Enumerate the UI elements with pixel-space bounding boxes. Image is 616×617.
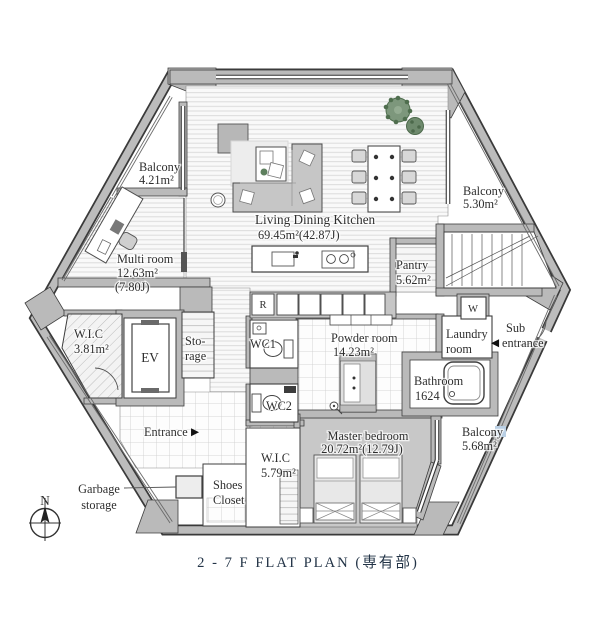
- label-bathroom-name: Bathroom: [414, 374, 464, 388]
- label-laundry-1: Laundry: [446, 327, 489, 341]
- label-sub-1: Sub: [506, 321, 525, 335]
- label-pantry-area: 5.62m²: [396, 273, 431, 287]
- label-wic-bedroom-area: 5.79m²: [261, 466, 296, 480]
- label-powder-name: Powder room: [331, 331, 398, 345]
- nightstand: [300, 508, 313, 523]
- label-laundry-2: room: [446, 342, 472, 356]
- label-balcony-tl-area: 4.21m²: [139, 173, 174, 187]
- label-ldk-name: Living Dining Kitchen: [255, 212, 376, 227]
- label-wic-small-name: W.I.C: [74, 327, 103, 341]
- caption: 2 - 7 F FLAT PLAN (専有部): [197, 554, 419, 571]
- label-wc1: WC1: [250, 337, 276, 351]
- label-balcony-tl-name: Balcony: [139, 160, 181, 174]
- label-shoes-2: Closet: [213, 493, 245, 507]
- coffee-table: [256, 147, 286, 181]
- label-multi-area2: (7.80J): [115, 280, 150, 294]
- label-multi-area: 12.63m²: [117, 266, 158, 280]
- corridor-floor: [210, 288, 250, 392]
- nightstand: [403, 508, 416, 523]
- label-washer: W: [468, 304, 478, 315]
- side-stool: [211, 193, 225, 207]
- label-wic-bedroom-name: W.I.C: [261, 451, 290, 465]
- label-garbage-2: storage: [81, 498, 117, 512]
- label-storage-2: rage: [185, 349, 207, 363]
- label-ldk-area: 69.45m²(42.87J): [258, 228, 340, 242]
- sub-entrance-arrow: ◀: [491, 338, 500, 349]
- label-powder-area: 14.23m²: [333, 345, 374, 359]
- dining-set: [352, 146, 416, 212]
- label-pantry-name: Pantry: [396, 258, 429, 272]
- label-balcony-br-area: 5.68m²: [462, 439, 497, 453]
- label-elevator: EV: [141, 350, 159, 365]
- label-master-name: Master bedroom: [328, 429, 409, 443]
- bed: [314, 455, 356, 523]
- garbage-storage-box: [176, 476, 202, 498]
- entrance-arrow: ▶: [191, 427, 200, 438]
- vanity: [340, 354, 376, 412]
- floor-plan-page: Balcony 4.21m² Balcony 5.30m² Living Din…: [0, 0, 616, 617]
- label-wc2: WC2: [266, 399, 292, 413]
- dining-table: [368, 146, 400, 212]
- kitchen-island: [252, 246, 368, 272]
- sink: [272, 252, 294, 266]
- bed: [360, 455, 402, 523]
- label-entrance: Entrance: [144, 425, 188, 439]
- label-balcony-br-name: Balcony: [462, 425, 504, 439]
- label-shoes-1: Shoes: [213, 478, 243, 492]
- label-sub-2: entrance: [502, 336, 544, 350]
- compass-north-label: N: [40, 493, 50, 508]
- label-storage-1: Sto-: [185, 334, 206, 348]
- label-refrigerator: R: [259, 300, 267, 311]
- label-bathroom-size: 1624: [415, 389, 440, 403]
- label-master-area: 20.72m²(12.79J): [321, 442, 403, 456]
- multi-door: [181, 252, 187, 272]
- label-balcony-tr-area: 5.30m²: [463, 197, 498, 211]
- label-wic-small-area: 3.81m²: [74, 342, 109, 356]
- label-garbage-1: Garbage: [78, 482, 120, 496]
- label-multi-name: Multi room: [117, 252, 174, 266]
- floor-plan-canvas: Balcony 4.21m² Balcony 5.30m² Living Din…: [0, 0, 616, 617]
- label-balcony-tr-name: Balcony: [463, 184, 505, 198]
